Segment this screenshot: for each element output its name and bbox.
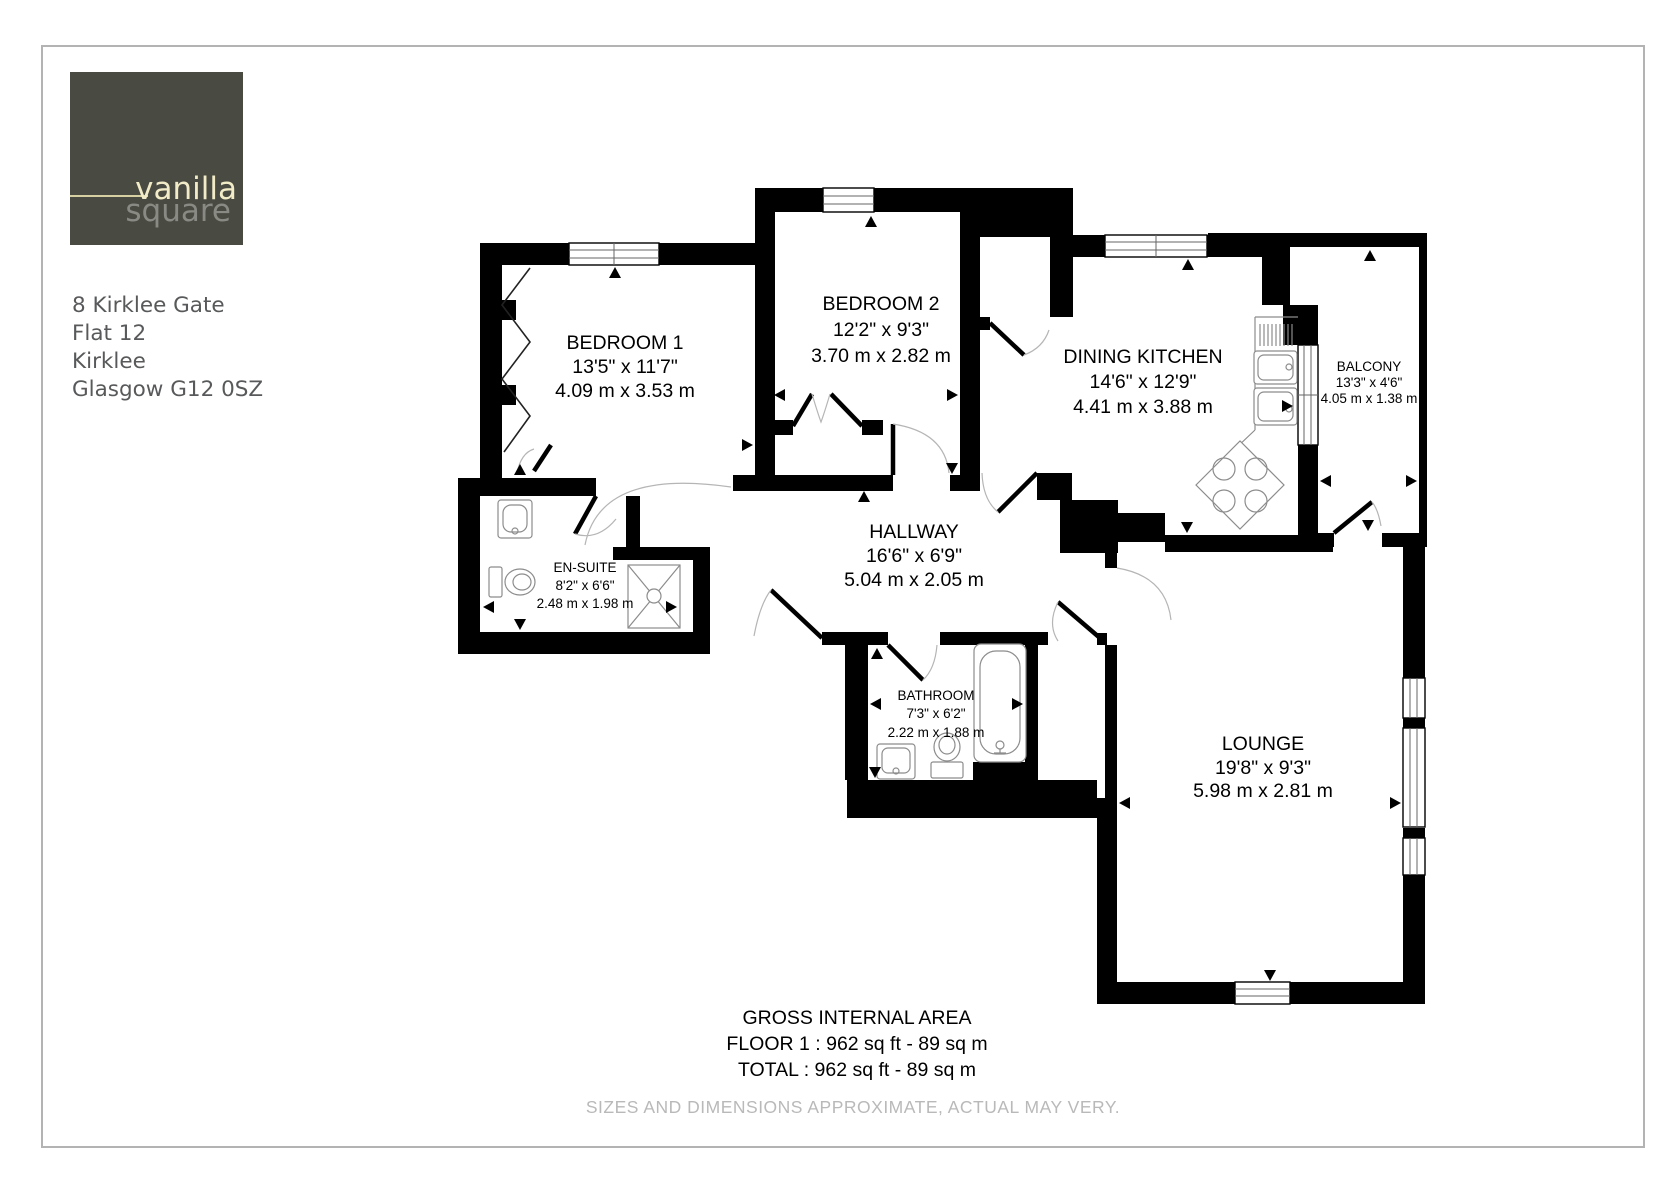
bathroom-metric: 2.22 m x 1.88 m	[888, 725, 985, 740]
floorplan-page: vanilla square 8 Kirklee Gate Flat 12 Ki…	[0, 0, 1680, 1188]
address-line-1: 8 Kirklee Gate	[72, 293, 225, 318]
balcony-name: BALCONY	[1337, 359, 1402, 374]
summary-floor: FLOOR 1 : 962 sq ft - 89 sq m	[726, 1033, 987, 1055]
ensuite-sink-icon	[498, 500, 532, 538]
summary-title: GROSS INTERNAL AREA	[742, 1007, 971, 1029]
bedroom2-imperial: 12'2" x 9'3"	[833, 319, 929, 341]
ensuite-name: EN-SUITE	[553, 560, 616, 575]
balcony-door-window	[1298, 345, 1318, 445]
bathroom-name: BATHROOM	[898, 688, 975, 703]
ensuite-imperial: 8'2" x 6'6"	[555, 578, 614, 593]
lounge-imperial: 19'8" x 9'3"	[1215, 757, 1311, 779]
address-line-4: Glasgow G12 0SZ	[72, 377, 263, 402]
dining-kitchen-metric: 4.41 m x 3.88 m	[1073, 396, 1213, 418]
bedroom2-name: BEDROOM 2	[822, 293, 939, 315]
kitchen-window	[1105, 235, 1207, 257]
bedroom2-metric: 3.70 m x 2.82 m	[811, 345, 951, 367]
balcony-imperial: 13'3" x 4'6"	[1336, 375, 1403, 390]
bedroom1-label: BEDROOM 1 13'5" x 11'7" 4.09 m x 3.53 m	[555, 332, 695, 402]
hallway-name: HALLWAY	[869, 521, 959, 543]
bedroom1-name: BEDROOM 1	[566, 332, 683, 354]
balcony-metric: 4.05 m x 1.38 m	[1321, 391, 1418, 406]
disclaimer-text: SIZES AND DIMENSIONS APPROXIMATE, ACTUAL…	[586, 1097, 1120, 1117]
address-line-3: Kirklee	[72, 349, 146, 374]
logo-text-secondary: square	[125, 193, 231, 229]
bedroom1-metric: 4.09 m x 3.53 m	[555, 380, 695, 402]
ensuite-toilet-icon	[489, 567, 535, 597]
lounge-bottom-window	[1235, 982, 1290, 1004]
lounge-metric: 5.98 m x 2.81 m	[1193, 780, 1333, 802]
area-summary: GROSS INTERNAL AREA FLOOR 1 : 962 sq ft …	[726, 1007, 987, 1081]
kitchen-sink-1-icon	[1254, 351, 1297, 384]
ensuite-metric: 2.48 m x 1.98 m	[537, 596, 634, 611]
bedroom1-window	[569, 243, 659, 265]
lounge-right-window-1	[1403, 678, 1425, 718]
bathroom-imperial: 7'3" x 6'2"	[906, 706, 965, 721]
lounge-right-window-3	[1403, 838, 1425, 875]
hallway-metric: 5.04 m x 2.05 m	[844, 569, 984, 591]
dining-kitchen-name: DINING KITCHEN	[1063, 346, 1222, 368]
agency-logo: vanilla square	[70, 72, 243, 245]
hallway-imperial: 16'6" x 6'9"	[866, 545, 962, 567]
summary-total: TOTAL : 962 sq ft - 89 sq m	[738, 1059, 976, 1081]
address-line-2: Flat 12	[72, 321, 146, 346]
lounge-name: LOUNGE	[1222, 733, 1304, 755]
dining-kitchen-imperial: 14'6" x 12'9"	[1090, 371, 1197, 393]
bedroom1-imperial: 13'5" x 11'7"	[572, 356, 678, 378]
bathroom-sink-icon	[877, 744, 915, 779]
lounge-right-window-2	[1403, 728, 1425, 827]
bedroom2-window	[823, 188, 874, 212]
